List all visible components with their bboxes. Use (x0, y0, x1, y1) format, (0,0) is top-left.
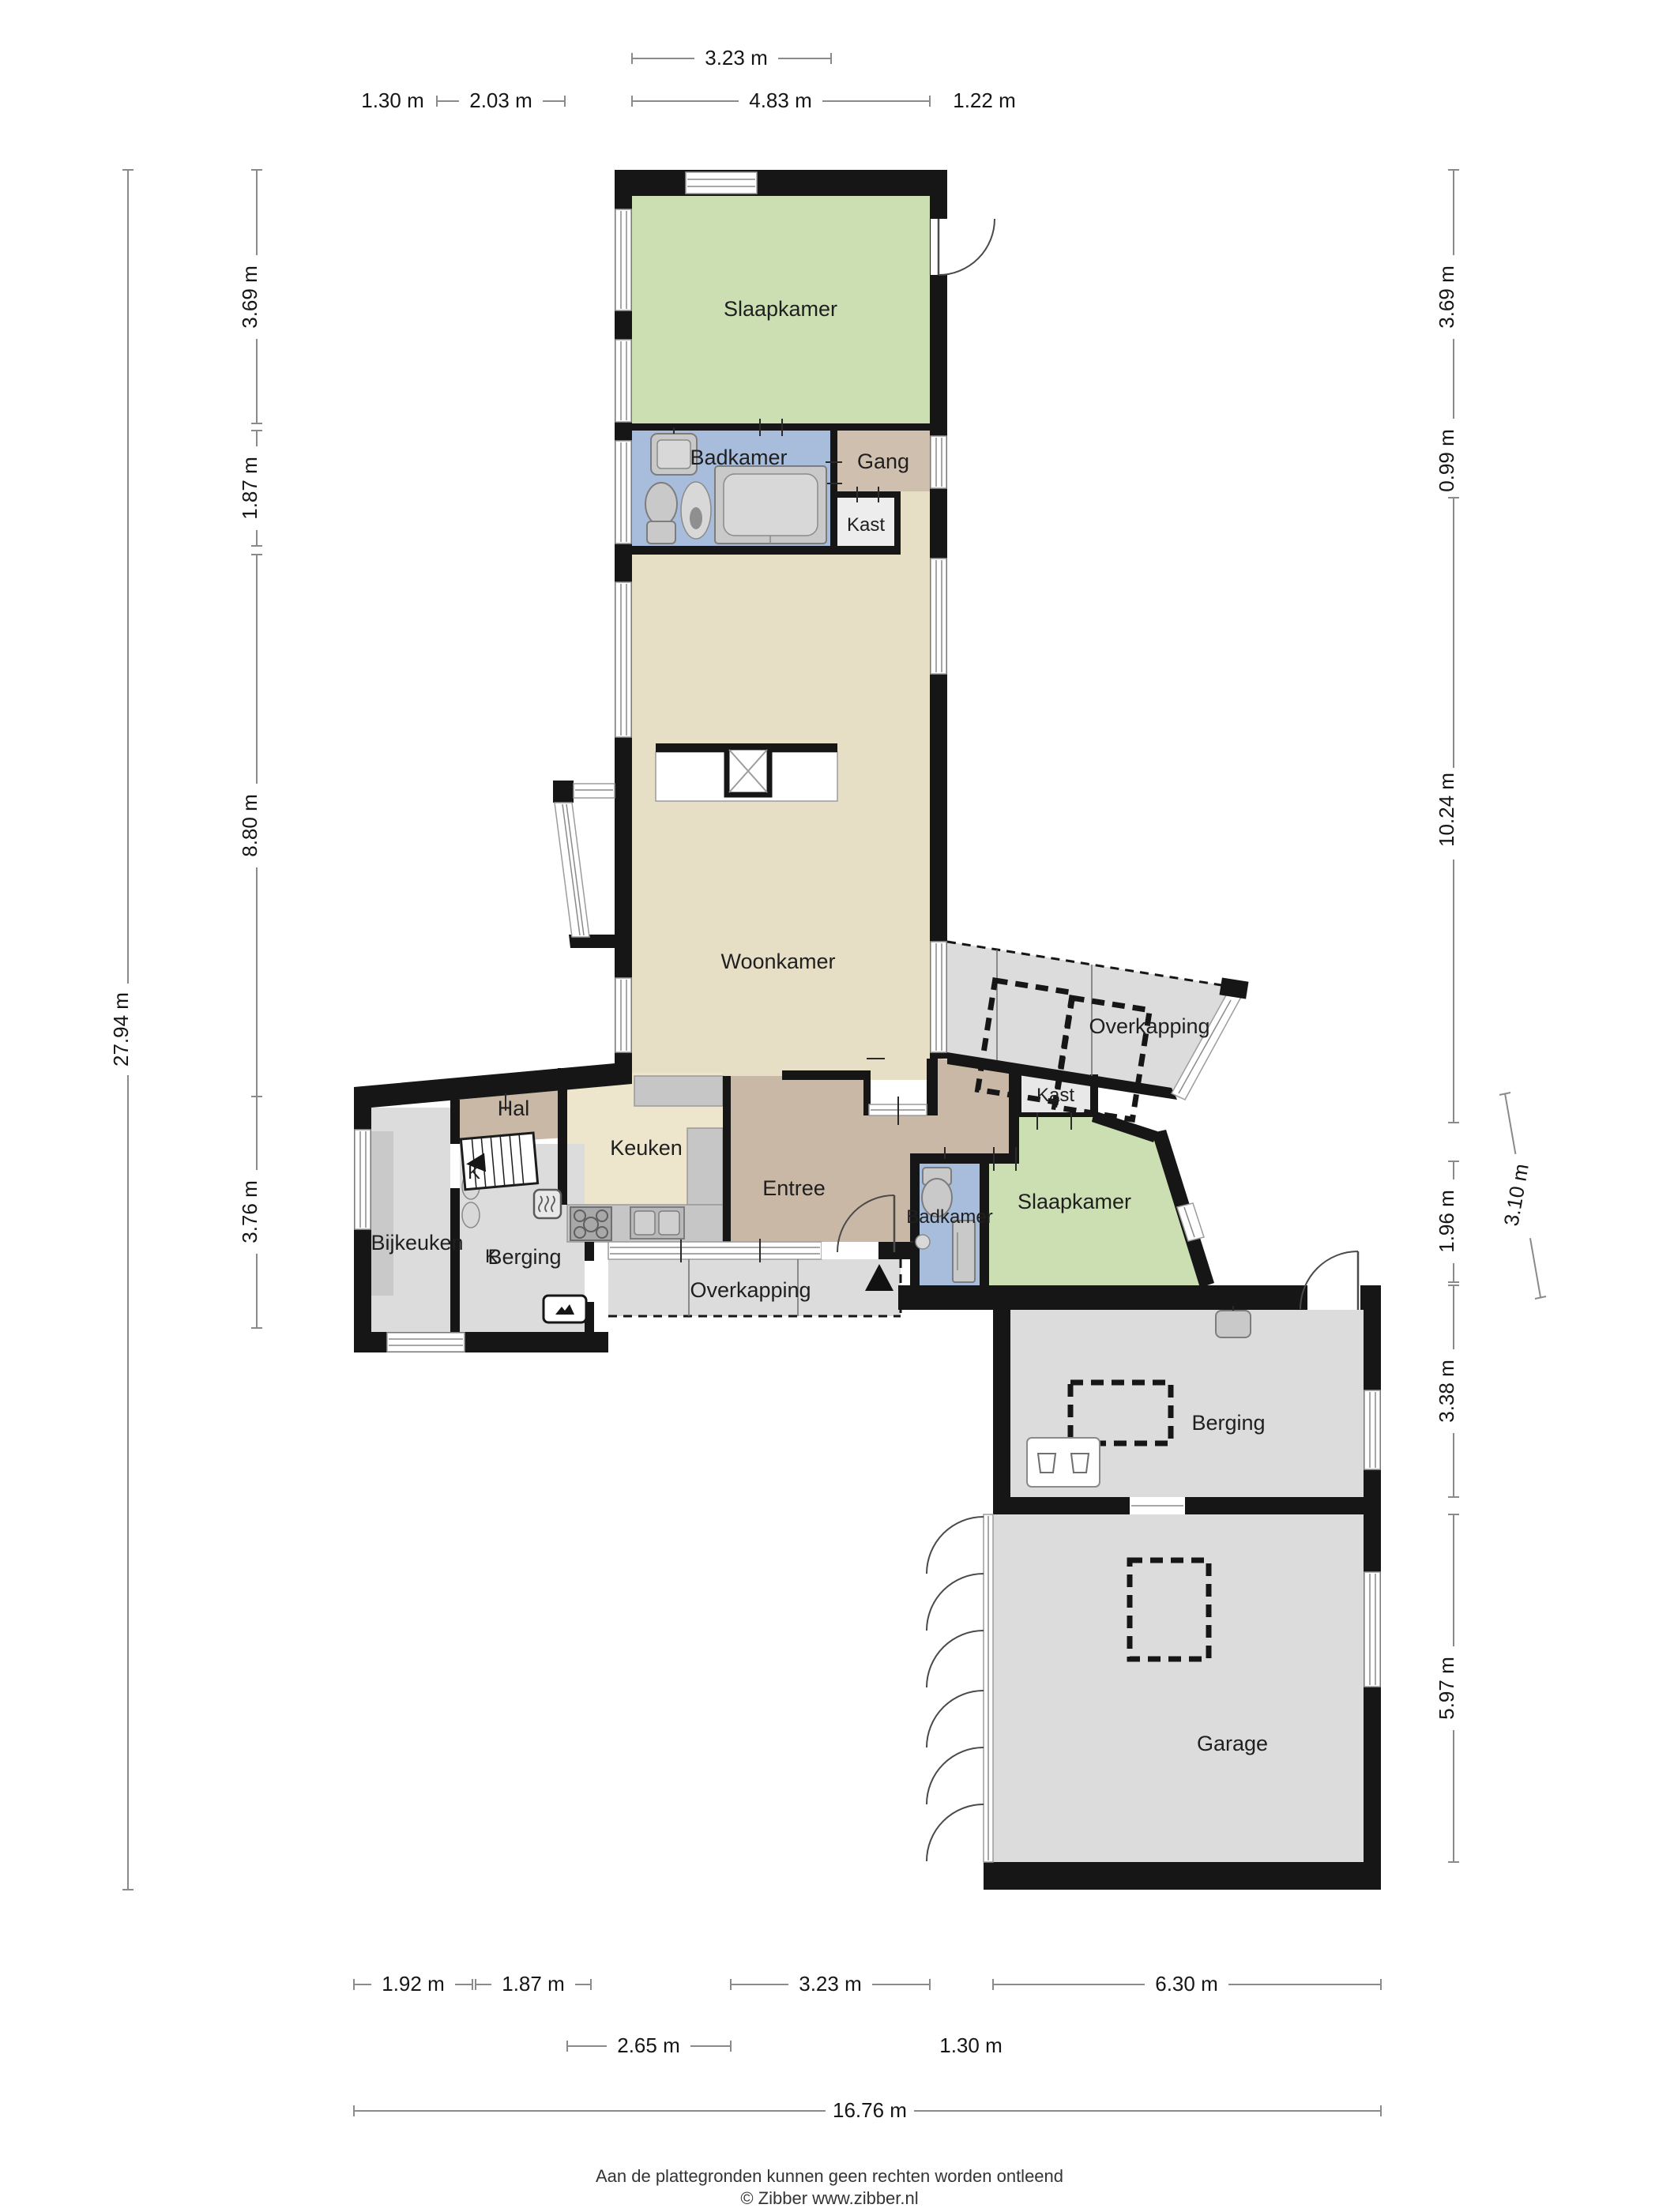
window-south-glasswall (608, 1239, 822, 1262)
kitchen-side-cabinet (687, 1128, 723, 1205)
entry-door-top (931, 219, 995, 275)
window-right-3 (931, 942, 946, 1052)
room-label-berging-large: Berging (1191, 1411, 1265, 1435)
toilet-icon-badkamer1 (645, 483, 677, 544)
window-left-4 (615, 582, 631, 737)
room-label-k-stairs: K (468, 1162, 480, 1183)
bidet-icon-badkamer1 (681, 482, 711, 539)
dim-top-483: 4.83 m (749, 88, 812, 112)
wood-stove-icon (544, 1296, 586, 1322)
dim-left-880: 8.80 m (238, 794, 261, 857)
dim-right-597: 5.97 m (1435, 1657, 1458, 1720)
room-woonkamer (632, 555, 930, 1080)
dim-top-323: 3.23 m (705, 46, 768, 70)
window-right-1 (931, 436, 946, 488)
room-label-gang: Gang (857, 450, 909, 473)
dim-bottom-630: 6.30 m (1155, 1972, 1218, 1996)
stove-icon (570, 1207, 611, 1240)
dim-top-203: 2.03 m (469, 88, 532, 112)
fireplace-recess (656, 743, 837, 801)
window-bijkeuken-bottom (387, 1333, 465, 1352)
dim-right-099: 0.99 m (1435, 429, 1458, 492)
berging-door (1300, 1251, 1360, 1310)
dim-bottom-187: 1.87 m (502, 1972, 565, 1996)
window-left-3 (615, 441, 631, 544)
sink-icon-berging (1216, 1306, 1251, 1337)
dim-right-196: 1.96 m (1435, 1190, 1458, 1253)
room-label-slaapkamer-top: Slaapkamer (724, 297, 837, 321)
double-unit-icon (1027, 1438, 1100, 1487)
dim-right-338: 3.38 m (1435, 1360, 1458, 1423)
berging-garage-opening (1130, 1497, 1185, 1514)
dim-left-total: 27.94 m (109, 992, 133, 1066)
berging-small-door-opening (585, 1261, 594, 1302)
room-label-kast-top: Kast (847, 514, 885, 536)
window-garage-right (1364, 1572, 1380, 1687)
room-woonkamer-notch (901, 491, 930, 555)
boiler-icon (534, 1190, 561, 1218)
room-label-garage: Garage (1197, 1732, 1268, 1755)
footer-credit: © Zibber www.zibber.nl (740, 2188, 918, 2208)
bijkeuken-cabinet (371, 1131, 393, 1296)
footer-disclaimer: Aan de plattegronden kunnen geen rechten… (596, 2166, 1063, 2186)
dim-bottom-192: 1.92 m (382, 1972, 445, 1996)
room-label-overkapping-bottom: Overkapping (690, 1278, 811, 1302)
dim-bottom-265: 2.65 m (617, 2033, 680, 2057)
kitchen-sink-icon (630, 1207, 684, 1239)
dim-bottom-total: 16.76 m (833, 2098, 907, 2122)
footer: Aan de plattegronden kunnen geen rechten… (596, 2166, 1063, 2208)
window-left-1 (615, 209, 631, 310)
sink-icon-badkamer2 (953, 1221, 975, 1282)
window-bijkeuken-left (355, 1130, 371, 1229)
room-label-kast2: Kast (1036, 1085, 1074, 1106)
window-left-5 (615, 978, 631, 1052)
room-label-badkamer-top: Badkamer (690, 446, 787, 469)
dim-left-187: 1.87 m (238, 457, 261, 520)
dim-bottom-130: 1.30 m (939, 2033, 1003, 2057)
kitchen-upper-cabinet (634, 1076, 723, 1106)
dim-bottom-323: 3.23 m (799, 1972, 862, 1996)
window-right-2 (931, 559, 946, 674)
window-top (686, 172, 757, 194)
bijkeuken-door-opening (450, 1144, 460, 1188)
room-label-woonkamer: Woonkamer (720, 950, 835, 973)
room-label-bijkeuken: Bijkeuken (371, 1231, 463, 1255)
window-berging-right (1364, 1390, 1380, 1469)
room-label-berging-small: Berging (487, 1245, 561, 1269)
dim-left-376: 3.76 m (238, 1180, 261, 1243)
garage-folding-doors (927, 1514, 993, 1862)
dim-left-369: 3.69 m (238, 265, 261, 329)
room-label-hal: Hal (498, 1097, 530, 1120)
dim-top-130: 1.30 m (361, 88, 424, 112)
window-left-2 (615, 340, 631, 422)
room-label-overkapping-right: Overkapping (1089, 1014, 1209, 1038)
room-label-entree: Entree (762, 1176, 826, 1200)
dim-top-122: 1.22 m (953, 88, 1016, 112)
bathtub-icon (715, 466, 826, 544)
room-label-slaapkamer2: Slaapkamer (1018, 1190, 1131, 1213)
room-garage (988, 1514, 1364, 1862)
dim-right-369: 3.69 m (1435, 265, 1458, 329)
room-label-keuken: Keuken (610, 1136, 683, 1160)
room-label-badkamer2: Badkamer (906, 1206, 992, 1228)
floorplan-canvas: Slaapkamer Badkamer Gang Kast Woonkamer … (0, 0, 1659, 2212)
dim-right-1024: 10.24 m (1435, 773, 1458, 847)
